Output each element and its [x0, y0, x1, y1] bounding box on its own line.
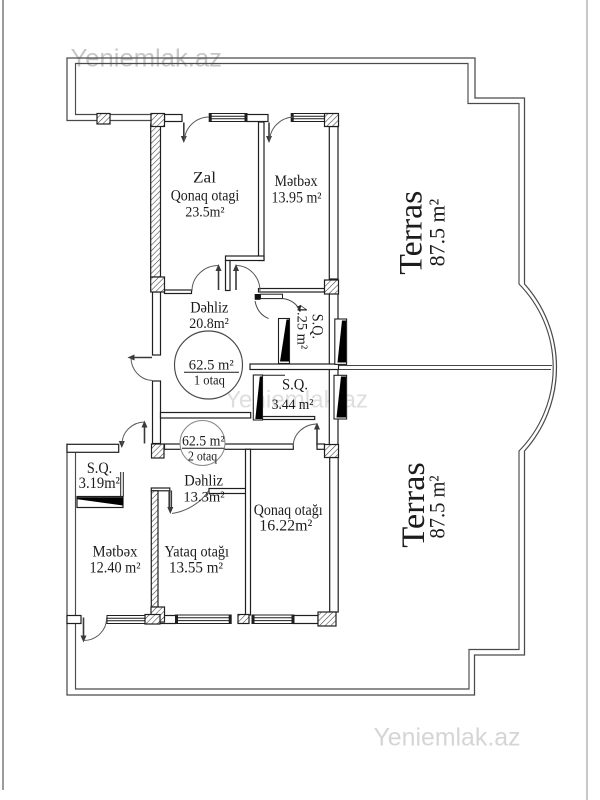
svg-text:Zal: Zal: [193, 169, 216, 186]
svg-text:Yeniemlak.az: Yeniemlak.az: [374, 724, 521, 752]
svg-text:Yataq otağı: Yataq otağı: [164, 544, 229, 561]
svg-text:20.8m²: 20.8m²: [189, 316, 229, 332]
svg-text:S.Q.: S.Q.: [308, 314, 325, 339]
svg-text:62.5 m²: 62.5 m²: [182, 434, 225, 450]
svg-text:13.55 m²: 13.55 m²: [169, 560, 223, 577]
svg-text:4.25 m²: 4.25 m²: [293, 305, 309, 350]
svg-text:S.Q.: S.Q.: [282, 377, 308, 394]
svg-text:1 otaq: 1 otaq: [194, 373, 225, 388]
svg-text:23.5m²: 23.5m²: [185, 204, 225, 220]
svg-text:87.5 m²: 87.5 m²: [425, 475, 450, 538]
svg-text:62.5 m²: 62.5 m²: [189, 358, 235, 374]
svg-text:Qonaq otağı: Qonaq otağı: [254, 502, 324, 519]
svg-text:13.3m²: 13.3m²: [183, 490, 225, 506]
svg-text:3.19m²: 3.19m²: [79, 475, 120, 492]
svg-text:12.40 m²: 12.40 m²: [90, 560, 141, 577]
svg-text:Mətbəx: Mətbəx: [93, 544, 138, 561]
svg-text:2 otaq: 2 otaq: [188, 449, 217, 464]
svg-text:87.5 m²: 87.5 m²: [425, 199, 450, 267]
svg-text:Qonaq otagi: Qonaq otagi: [171, 188, 240, 205]
svg-text:16.22m²: 16.22m²: [259, 518, 312, 535]
svg-text:13.95 m²: 13.95 m²: [272, 190, 322, 207]
svg-text:Mətbəx: Mətbəx: [275, 173, 318, 190]
svg-text:Dəhliz: Dəhliz: [190, 299, 228, 316]
svg-text:Dəhliz: Dəhliz: [184, 473, 223, 490]
svg-text:3.44 m²: 3.44 m²: [272, 397, 314, 413]
